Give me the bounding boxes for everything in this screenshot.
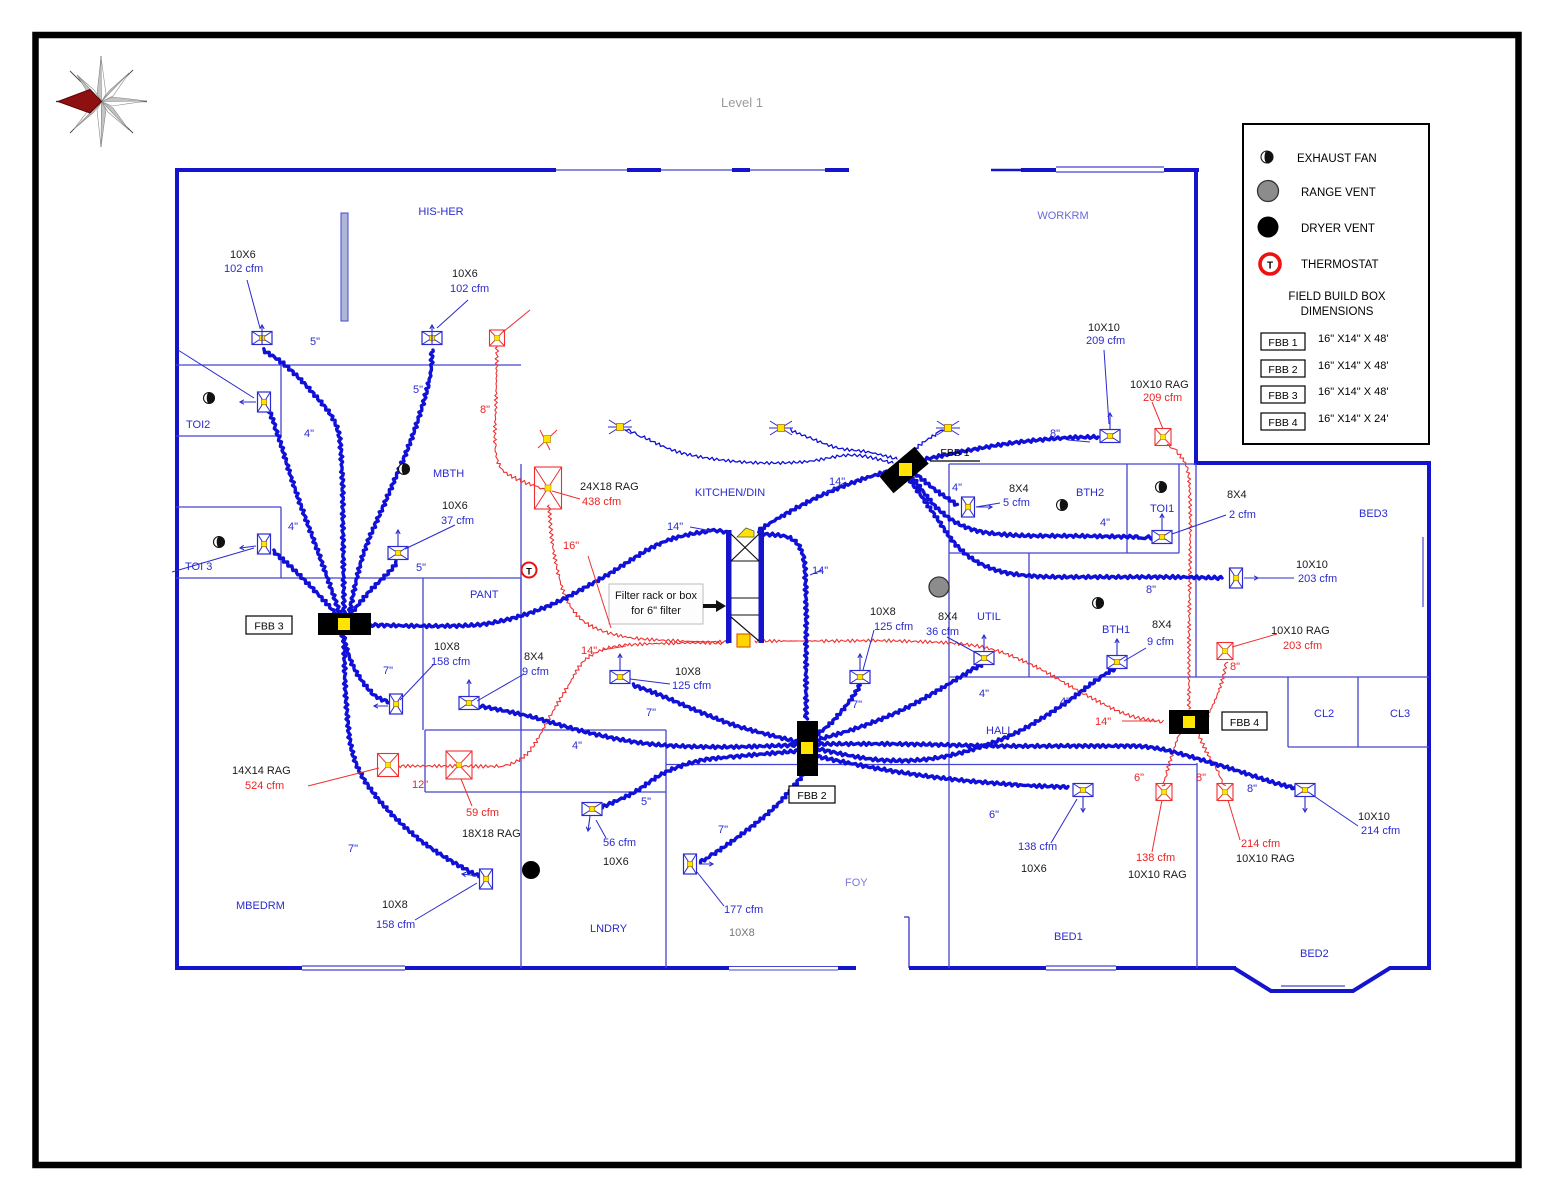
svg-text:FBB 1: FBB 1 — [1268, 337, 1297, 349]
svg-text:MBTH: MBTH — [433, 468, 464, 480]
svg-text:BTH1: BTH1 — [1102, 624, 1130, 636]
svg-text:10X10: 10X10 — [1088, 322, 1120, 334]
svg-text:59 cfm: 59 cfm — [466, 807, 499, 819]
svg-text:4": 4" — [1060, 696, 1070, 708]
svg-text:16" X14" X 48': 16" X14" X 48' — [1318, 360, 1388, 372]
svg-text:WORKRM: WORKRM — [1037, 210, 1088, 222]
svg-text:TOI1: TOI1 — [1150, 503, 1174, 515]
svg-text:10X6: 10X6 — [442, 500, 468, 512]
svg-text:8X4: 8X4 — [1009, 483, 1029, 495]
svg-text:FBB 3: FBB 3 — [254, 621, 283, 633]
svg-text:KITCHEN/DIN: KITCHEN/DIN — [695, 487, 765, 499]
svg-text:10X10: 10X10 — [1358, 811, 1390, 823]
svg-text:56 cfm: 56 cfm — [603, 837, 636, 849]
svg-text:138 cfm: 138 cfm — [1136, 852, 1175, 864]
svg-text:4": 4" — [288, 521, 298, 533]
svg-text:8X4: 8X4 — [1227, 489, 1247, 501]
svg-text:8": 8" — [1196, 772, 1206, 784]
svg-text:16" X14" X 48': 16" X14" X 48' — [1318, 333, 1388, 345]
svg-text:DIMENSIONS: DIMENSIONS — [1301, 306, 1374, 318]
svg-text:14": 14" — [1095, 716, 1111, 728]
svg-text:8X4: 8X4 — [938, 611, 958, 623]
svg-text:203 cfm: 203 cfm — [1283, 640, 1322, 652]
svg-text:10X10 RAG: 10X10 RAG — [1130, 379, 1189, 391]
svg-text:4": 4" — [304, 428, 314, 440]
svg-text:FBB 3: FBB 3 — [1268, 390, 1297, 402]
svg-text:PANT: PANT — [470, 589, 499, 601]
svg-text:177 cfm: 177 cfm — [724, 904, 763, 916]
svg-text:209 cfm: 209 cfm — [1086, 335, 1125, 347]
svg-text:BED3: BED3 — [1359, 508, 1388, 520]
svg-text:203 cfm: 203 cfm — [1298, 573, 1337, 585]
svg-text:BED2: BED2 — [1300, 948, 1329, 960]
svg-text:214 cfm: 214 cfm — [1361, 825, 1400, 837]
svg-text:10X8: 10X8 — [870, 606, 896, 618]
svg-text:158 cfm: 158 cfm — [431, 656, 470, 668]
svg-text:102 cfm: 102 cfm — [450, 283, 489, 295]
svg-text:438 cfm: 438 cfm — [582, 496, 621, 508]
svg-text:T: T — [526, 567, 532, 577]
svg-text:10X10 RAG: 10X10 RAG — [1236, 853, 1295, 865]
svg-text:158 cfm: 158 cfm — [376, 919, 415, 931]
svg-text:Filter rack or box: Filter rack or box — [615, 590, 697, 602]
svg-text:14": 14" — [829, 476, 845, 488]
svg-text:BED1: BED1 — [1054, 931, 1083, 943]
svg-text:T: T — [1267, 261, 1273, 272]
svg-text:FBB 2: FBB 2 — [797, 790, 826, 802]
svg-text:14": 14" — [812, 565, 828, 577]
svg-text:10X8: 10X8 — [729, 927, 755, 939]
svg-text:9 cfm: 9 cfm — [522, 666, 549, 678]
svg-text:4": 4" — [979, 688, 989, 700]
svg-text:FBB 4: FBB 4 — [1268, 417, 1297, 429]
svg-text:138 cfm: 138 cfm — [1018, 841, 1057, 853]
svg-text:5": 5" — [416, 562, 426, 574]
svg-text:4": 4" — [572, 740, 582, 752]
svg-text:18X18 RAG: 18X18 RAG — [462, 828, 521, 840]
svg-text:10X6: 10X6 — [1021, 863, 1047, 875]
svg-text:524 cfm: 524 cfm — [245, 780, 284, 792]
svg-text:HIS-HER: HIS-HER — [418, 206, 463, 218]
svg-text:FBB 4: FBB 4 — [1230, 717, 1259, 729]
svg-text:36 cfm: 36 cfm — [926, 626, 959, 638]
svg-text:HALL: HALL — [986, 725, 1014, 737]
svg-text:7": 7" — [348, 843, 358, 855]
svg-text:8": 8" — [480, 404, 490, 416]
svg-text:125 cfm: 125 cfm — [672, 680, 711, 692]
svg-text:UTIL: UTIL — [977, 611, 1001, 623]
svg-text:10X10 RAG: 10X10 RAG — [1271, 625, 1330, 637]
svg-text:FBB 2: FBB 2 — [1268, 364, 1297, 376]
svg-text:TOI2: TOI2 — [186, 419, 210, 431]
svg-text:5": 5" — [641, 796, 651, 808]
svg-text:FOY: FOY — [845, 877, 868, 889]
svg-text:37 cfm: 37 cfm — [441, 515, 474, 527]
svg-text:16" X14" X 48': 16" X14" X 48' — [1318, 386, 1388, 398]
svg-text:4": 4" — [952, 482, 962, 494]
svg-text:10X6: 10X6 — [603, 856, 629, 868]
svg-text:10X6: 10X6 — [230, 249, 256, 261]
svg-text:209 cfm: 209 cfm — [1143, 392, 1182, 404]
svg-text:LNDRY: LNDRY — [590, 923, 628, 935]
svg-text:5 cfm: 5 cfm — [1003, 497, 1030, 509]
svg-text:5": 5" — [310, 336, 320, 348]
svg-text:7": 7" — [852, 699, 862, 711]
svg-text:6": 6" — [1134, 772, 1144, 784]
svg-text:8X4: 8X4 — [1152, 619, 1172, 631]
svg-text:8": 8" — [1050, 428, 1060, 440]
svg-text:16": 16" — [563, 540, 579, 552]
svg-text:7": 7" — [383, 665, 393, 677]
svg-text:8": 8" — [1146, 584, 1156, 596]
svg-text:14X14 RAG: 14X14 RAG — [232, 765, 291, 777]
svg-text:214 cfm: 214 cfm — [1241, 838, 1280, 850]
svg-text:FIELD BUILD BOX: FIELD BUILD BOX — [1288, 291, 1385, 303]
svg-text:2 cfm: 2 cfm — [1229, 509, 1256, 521]
svg-text:9 cfm: 9 cfm — [1147, 636, 1174, 648]
svg-text:125 cfm: 125 cfm — [874, 621, 913, 633]
svg-text:14": 14" — [581, 645, 597, 657]
svg-text:10X8: 10X8 — [675, 666, 701, 678]
svg-text:EXHAUST FAN: EXHAUST FAN — [1297, 153, 1377, 165]
svg-text:THERMOSTAT: THERMOSTAT — [1301, 259, 1379, 271]
svg-text:10X10 RAG: 10X10 RAG — [1128, 869, 1187, 881]
svg-text:TOI 3: TOI 3 — [185, 561, 212, 573]
svg-text:CL3: CL3 — [1390, 708, 1410, 720]
svg-text:102 cfm: 102 cfm — [224, 263, 263, 275]
svg-text:10X10: 10X10 — [1296, 559, 1328, 571]
svg-text:DRYER VENT: DRYER VENT — [1301, 223, 1375, 235]
svg-text:4": 4" — [1100, 517, 1110, 529]
svg-text:5": 5" — [413, 384, 423, 396]
svg-text:7": 7" — [718, 824, 728, 836]
svg-text:10X6: 10X6 — [452, 268, 478, 280]
svg-text:24X18 RAG: 24X18 RAG — [580, 481, 639, 493]
svg-text:CL2: CL2 — [1314, 708, 1334, 720]
svg-text:Level 1: Level 1 — [721, 95, 763, 110]
svg-text:MBEDRM: MBEDRM — [236, 900, 285, 912]
svg-text:10X8: 10X8 — [434, 641, 460, 653]
svg-text:16" X14" X 24': 16" X14" X 24' — [1318, 413, 1388, 425]
svg-text:12": 12" — [412, 779, 428, 791]
svg-text:7": 7" — [646, 707, 656, 719]
svg-text:8": 8" — [1247, 783, 1257, 795]
svg-text:10X8: 10X8 — [382, 899, 408, 911]
svg-text:FBB 1: FBB 1 — [940, 447, 969, 459]
svg-text:for 6" filter: for 6" filter — [631, 605, 681, 617]
svg-text:6": 6" — [989, 809, 999, 821]
svg-text:8X4: 8X4 — [524, 651, 544, 663]
svg-text:14": 14" — [667, 521, 683, 533]
svg-text:8": 8" — [1230, 661, 1240, 673]
svg-text:RANGE VENT: RANGE VENT — [1301, 187, 1376, 199]
svg-text:BTH2: BTH2 — [1076, 487, 1104, 499]
